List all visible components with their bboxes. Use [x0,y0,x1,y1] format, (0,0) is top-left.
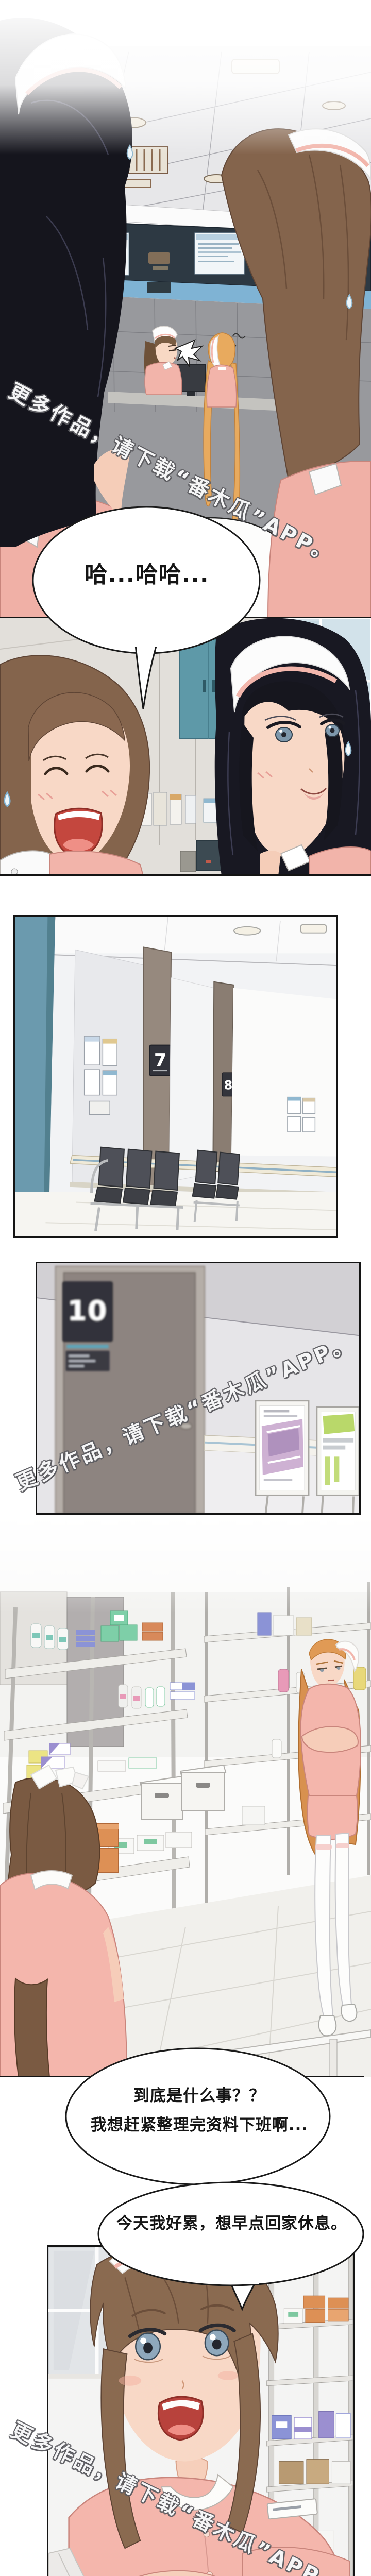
speech-bubble-laugh [30,505,263,721]
door-sign-10: 10 [68,1295,108,1327]
door-sign-10-group: 10 [63,1282,113,1371]
speech-bubble-tired [96,2180,368,2315]
door-pillar-8: 8 [213,982,234,1172]
panel-divider-2 [0,874,371,876]
panel-corridor: 7 8 [13,915,338,1238]
far-bright-wall [231,988,336,1157]
board-screen-right [195,233,244,274]
panel-door-10: 10 [36,1262,361,1515]
speech-text-ask-line1: 到底是什么事？？ [63,2081,336,2111]
speech-text-tired: 今天我好累，想早点回家休息。 [96,2213,368,2235]
door-sign-7: 7 [154,1050,167,1071]
comic-page: 7 8 [0,0,371,2576]
speech-text-ask: 到底是什么事？？ 我想赶紧整理完资料下班啊... [63,2081,336,2140]
panel-storage-room [0,1515,371,2077]
door-sign-8: 8 [224,1078,233,1093]
speech-text-laugh: 哈...哈哈... [36,560,258,590]
speech-text-ask-line2: 我想赶紧整理完资料下班啊... [63,2111,336,2140]
